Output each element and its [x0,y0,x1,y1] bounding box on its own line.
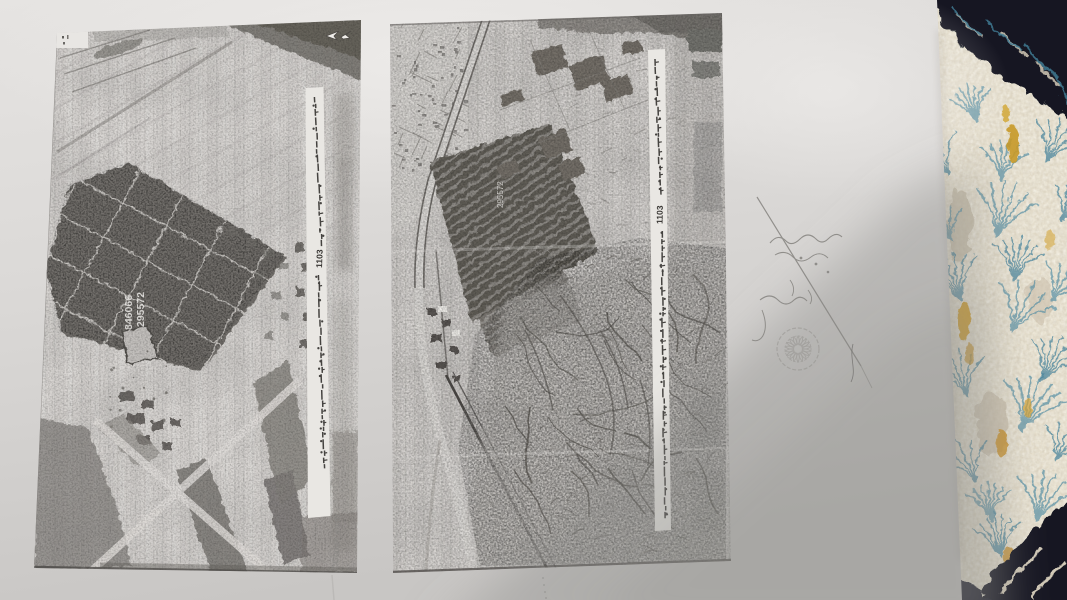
svg-text:1103: 1103 [655,205,665,224]
svg-text:©Google earth: ©Google earth [330,514,342,570]
svg-text:1103: 1103 [314,249,325,268]
